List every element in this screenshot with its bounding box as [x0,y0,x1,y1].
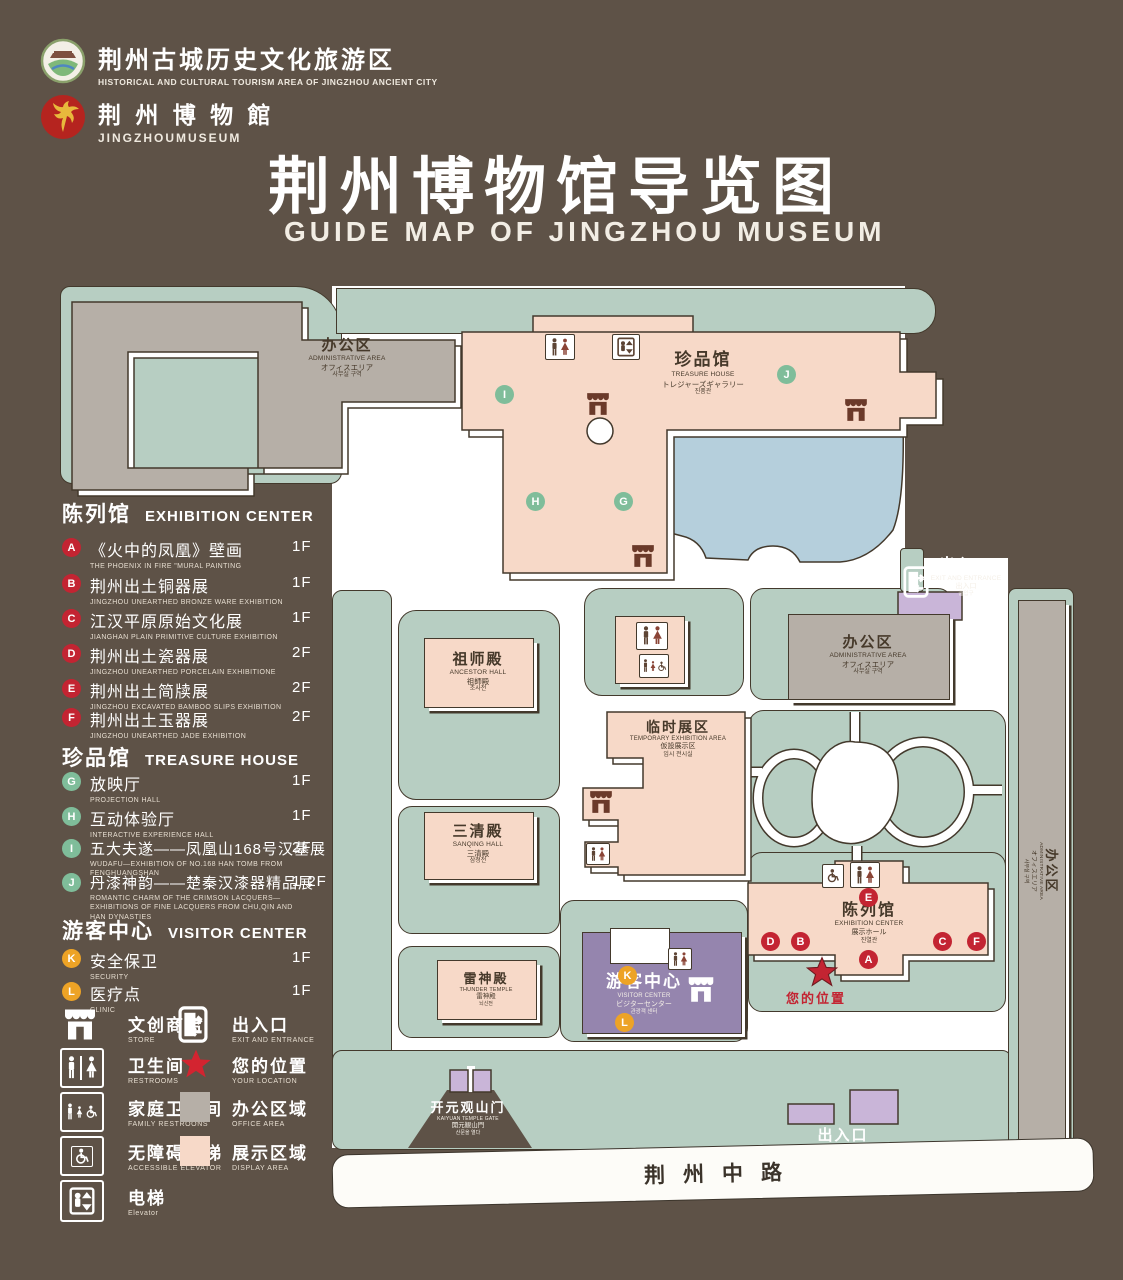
exit-bottom-pad-right [850,1090,898,1124]
restrooms-icon [545,334,575,360]
pond [667,420,903,562]
elevator-icon [612,334,640,360]
label-admin-right: 办公区 ADMINISTRATIVE AREA オフィスエリア 사무실 구역 [998,831,1084,911]
label-temp: 临时展区 TEMPORARY EXHIBITION AREA 仮設展示区 임시 … [612,714,744,764]
label-treasure: 珍品馆 TREASURE HOUSE トレジャーズギャラリー 진품관 [618,344,788,402]
restrooms-icon [668,948,692,970]
label-gate: 开元观山门 KAIYUAN TEMPLE GATE 開元観山門 산문을 열다 [414,1094,522,1142]
gate-pillar-left [450,1070,468,1092]
label-ancestor-en: ANCESTOR HALL [450,669,507,677]
label-exit-top: 出入口 EXIT AND ENTRANCE 出入口 출입구 [916,554,1016,600]
restrooms-icon [636,622,668,650]
store-icon [843,398,869,422]
store-icon [585,392,611,416]
label-gate-jp: 開元観山門 [452,1122,485,1130]
family-restroom-icon [639,654,669,678]
restrooms-icon [850,862,880,888]
label-temp-kr: 임시 전시실 [663,752,692,759]
restrooms-icon [586,843,610,865]
label-ancestor-jp: 祖師殿 [467,677,490,686]
label-sanqing: 三清殿 SANQING HALL 三清殿 삼청전 [424,814,532,874]
marker-B: B [791,932,810,951]
label-ancestor: 祖师殿 ANCESTOR HALL 祖師殿 조사전 [424,642,532,702]
marker-C: C [933,932,952,951]
label-admin-east: 办公区 ADMINISTRATIVE AREA オフィスエリア 사무실 구역 [798,624,938,686]
your-location-star-icon [806,956,838,988]
your-location-label: 您的位置 [786,988,866,1007]
label-admin-east-jp: オフィスエリア [842,660,894,669]
label-thunder: 雷神殿 THUNDER TEMPLE 雷神殿 뇌신전 [437,962,535,1016]
label-visitor-en: VISITOR CENTER [617,993,670,1000]
label-thunder-jp: 雷神殿 [476,993,496,1001]
marker-D: D [761,932,780,951]
label-admin-nw-jp: オフィスエリア [321,363,373,372]
visitor-center-notch [610,928,670,964]
label-admin-right-kr: 사무실 구역 [1023,859,1029,883]
label-ancestor-zh: 祖师殿 [452,651,503,669]
gate-pillar-right [473,1070,491,1092]
label-exit-top-kr: 출입구 [958,591,973,598]
marker-F: F [967,932,986,951]
label-admin-east-kr: 사무실 구역 [853,669,882,676]
label-exit-top-zh: 出入口 [939,556,993,575]
label-treasure-jp: トレジャーズギャラリー [662,380,744,389]
marker-K: K [618,966,637,985]
accessible-elevator-icon [822,864,844,888]
label-admin-nw-kr: 사무실 구역 [332,372,361,379]
label-admin-east-en: ADMINISTRATIVE AREA [830,652,907,660]
store-icon [686,976,716,1003]
label-temp-zh: 临时展区 [646,719,710,736]
road-label: 荆州中路 [626,1156,801,1190]
label-exhibition-en: EXHIBITION CENTER [835,920,904,928]
label-exhibition-kr: 진열관 [861,938,878,945]
label-visitor-kr: 관광객 센터 [631,1009,658,1016]
map-shapes [0,0,1123,1280]
label-exhibition-jp: 展示ホール [852,929,887,937]
label-temp-jp: 仮設展示区 [661,743,696,751]
label-gate-zh: 开元观山门 [430,1100,505,1116]
exit-door-icon [903,566,929,598]
label-thunder-kr: 뇌신전 [479,1001,493,1007]
label-sanqing-en: SANQING HALL [453,841,503,849]
label-thunder-zh: 雷神殿 [463,971,508,987]
marker-J: J [777,365,796,384]
label-sanqing-kr: 삼청전 [470,858,487,865]
marker-L: L [615,1013,634,1032]
label-admin-right-en: ADMINISTRATIVE AREA [1037,842,1043,900]
exit-bottom-pad-left [788,1104,834,1124]
marker-G: G [614,492,633,511]
label-gate-kr: 산문을 열다 [456,1130,480,1136]
marker-A: A [859,950,878,969]
label-admin-right-jp: オフィスエリア [1029,850,1036,892]
store-icon [588,790,614,814]
label-exit-top-en: EXIT AND ENTRANCE [931,575,1001,583]
label-sanqing-zh: 三清殿 [452,823,503,841]
label-sanqing-jp: 三清殿 [467,849,490,858]
label-treasure-kr: 진품관 [695,389,712,396]
marker-H: H [526,492,545,511]
store-icon [630,544,656,568]
label-admin-nw-zh: 办公区 [321,337,372,355]
label-treasure-en: TREASURE HOUSE [671,371,734,379]
label-treasure-zh: 珍品馆 [675,350,732,370]
marker-E: E [859,888,878,907]
label-ancestor-kr: 조사전 [470,686,487,693]
label-admin-right-zh: 办公区 [1043,848,1059,893]
label-admin-nw: 办公区 ADMINISTRATIVE AREA オフィスエリア 사무실 구역 [288,330,406,386]
label-admin-east-zh: 办公区 [842,634,893,652]
label-visitor-jp: ビジターセンター [616,1001,672,1009]
marker-I: I [495,385,514,404]
label-admin-nw-en: ADMINISTRATIVE AREA [309,355,386,363]
